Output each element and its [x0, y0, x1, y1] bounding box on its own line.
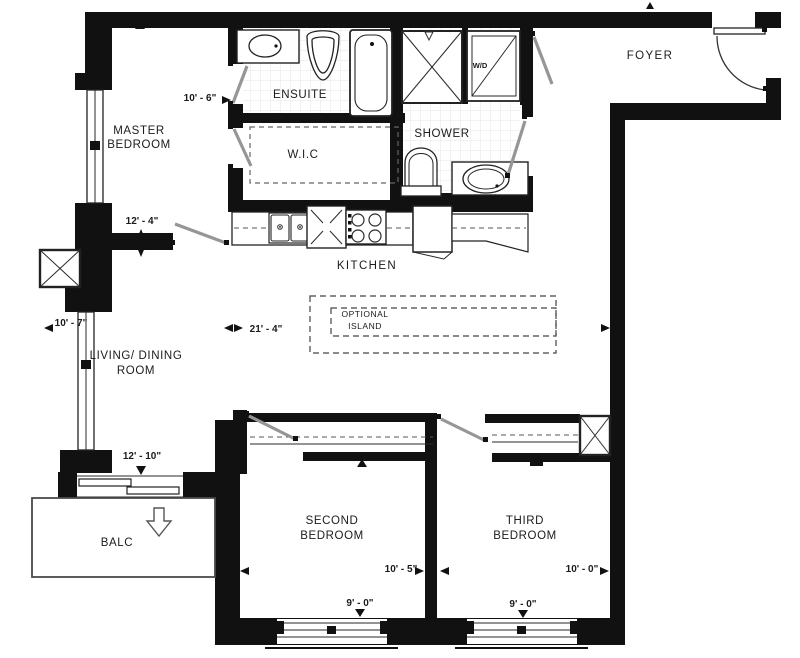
- column-box-third-bedroom: [580, 416, 610, 455]
- dim-second-width: 10' - 5": [385, 564, 418, 575]
- dim-master-width: 10' - 6": [184, 93, 217, 104]
- floor-plan-drawing: MASTER BEDROOM ENSUITE W.I.C SHOWER W/D …: [0, 0, 800, 658]
- label-living-1: LIVING/ DINING: [90, 350, 183, 362]
- dim-second-depth: 9' - 0": [346, 598, 373, 609]
- bathtub: [350, 30, 392, 116]
- label-living-2: ROOM: [117, 365, 155, 377]
- label-master-bedroom-2: BEDROOM: [107, 139, 171, 151]
- window-third-bedroom: [455, 619, 588, 648]
- label-second-bedroom-2: BEDROOM: [300, 530, 364, 542]
- label-island-2: ISLAND: [348, 321, 382, 331]
- label-foyer: FOYER: [627, 50, 674, 62]
- floor-plan-sheet: MASTER BEDROOM ENSUITE W.I.C SHOWER W/D …: [0, 0, 800, 658]
- label-wic: W.I.C: [287, 149, 318, 161]
- label-master-bedroom-1: MASTER: [113, 125, 165, 137]
- dim-balcony-width: 12' - 10": [123, 451, 162, 462]
- label-wd: W/D: [473, 61, 488, 70]
- wic-door: [234, 129, 251, 166]
- column-box-left: [40, 250, 80, 287]
- dim-living-length: 21' - 4": [250, 324, 283, 335]
- label-ensuite: ENSUITE: [273, 89, 327, 101]
- dim-third-depth: 9' - 0": [509, 599, 536, 610]
- bath-vanity: [452, 162, 528, 195]
- label-kitchen: KITCHEN: [337, 260, 397, 272]
- dim-third-width: 10' - 0": [566, 564, 599, 575]
- entry-door: [714, 28, 765, 90]
- label-shower: SHOWER: [414, 128, 469, 140]
- dim-living-width: 10' - 7": [55, 318, 88, 329]
- shower-stall: [402, 31, 462, 103]
- counter-return: [452, 214, 528, 252]
- label-third-bedroom-1: THIRD: [506, 515, 544, 527]
- wic-shelving: [250, 127, 398, 183]
- master-bedroom-door: [175, 224, 226, 243]
- balcony-entry-arrow: [147, 508, 171, 536]
- wd-door: [534, 37, 552, 84]
- balcony-sliding-door: [77, 473, 183, 498]
- label-island-1: OPTIONAL: [342, 309, 389, 319]
- bath-toilet: [401, 148, 441, 196]
- corner-cabinet: [307, 206, 346, 248]
- dim-master-depth: 12' - 4": [126, 216, 159, 227]
- ensuite-sink: [237, 30, 299, 63]
- window-master-left: [87, 90, 103, 203]
- third-bedroom-door: [441, 419, 486, 441]
- window-second-bedroom: [265, 619, 398, 648]
- kitchen-sink: [269, 213, 311, 243]
- label-third-bedroom-2: BEDROOM: [493, 530, 557, 542]
- window-living-left: [78, 312, 94, 450]
- fridge: [413, 206, 452, 259]
- label-balcony: BALC: [101, 537, 133, 549]
- label-second-bedroom-1: SECOND: [306, 515, 359, 527]
- stove: [346, 210, 386, 244]
- optional-island-outline: [310, 296, 556, 353]
